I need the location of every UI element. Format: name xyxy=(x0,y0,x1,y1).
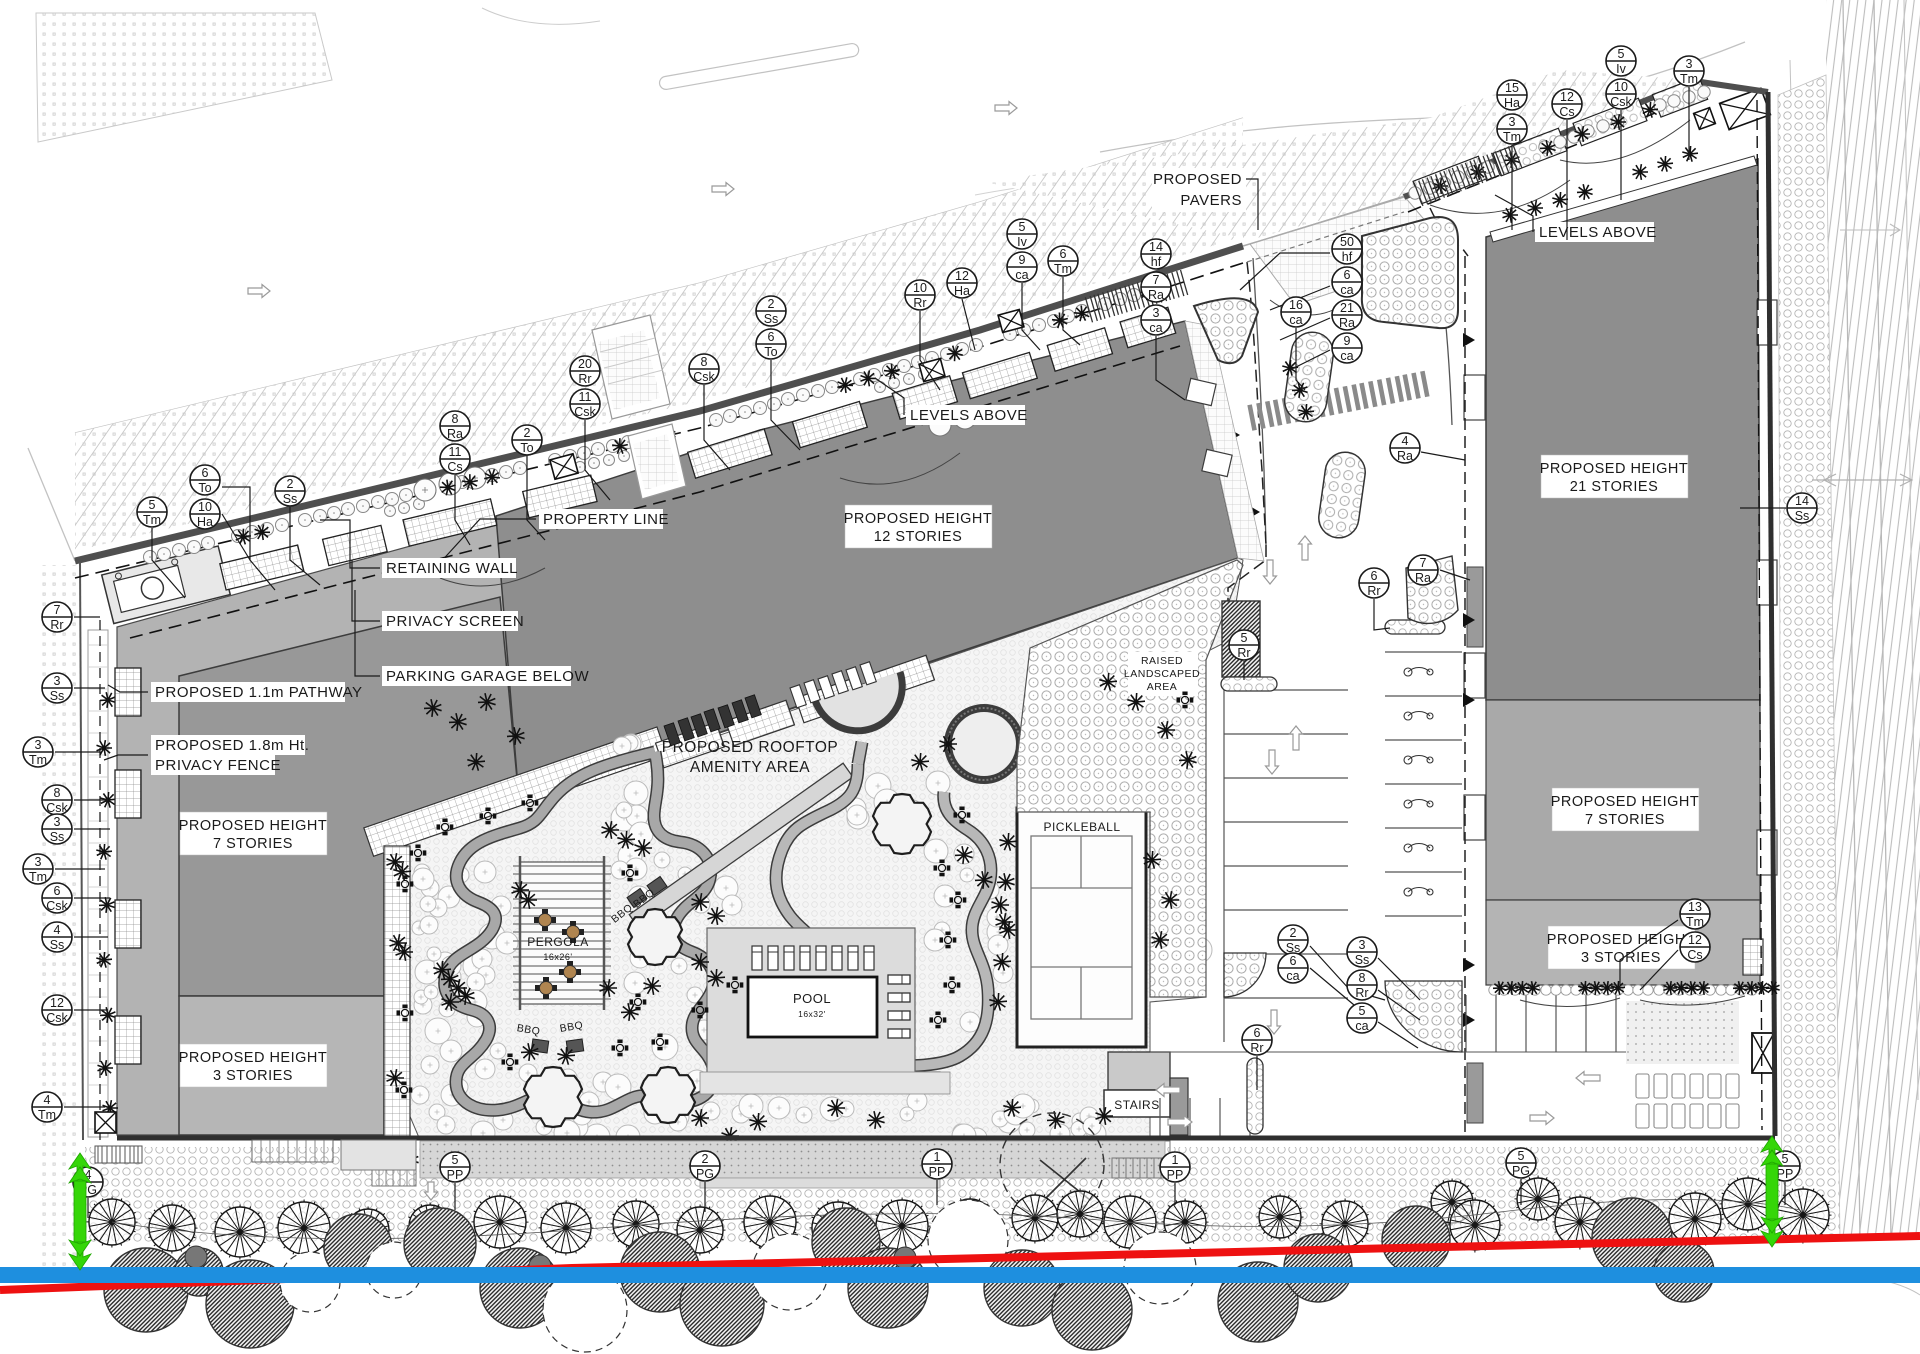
svg-text:Ss: Ss xyxy=(1795,509,1810,523)
svg-text:7: 7 xyxy=(54,603,61,617)
svg-text:7 STORIES: 7 STORIES xyxy=(1585,812,1665,828)
svg-text:16: 16 xyxy=(1289,298,1303,312)
svg-text:Ra: Ra xyxy=(1397,449,1413,463)
svg-text:Ra: Ra xyxy=(1339,316,1355,330)
svg-text:Ra: Ra xyxy=(1148,288,1164,302)
svg-text:9: 9 xyxy=(1019,253,1026,267)
svg-text:hf: hf xyxy=(1342,250,1353,264)
svg-text:Ss: Ss xyxy=(1355,953,1370,967)
svg-text:PP: PP xyxy=(929,1165,946,1179)
svg-text:6: 6 xyxy=(1344,268,1351,282)
svg-text:5: 5 xyxy=(452,1153,459,1167)
svg-text:ca: ca xyxy=(1340,283,1353,297)
svg-text:Csk: Csk xyxy=(46,899,68,913)
svg-text:3: 3 xyxy=(35,738,42,752)
svg-text:Iv: Iv xyxy=(1017,235,1027,249)
svg-text:Csk: Csk xyxy=(46,1011,68,1025)
svg-text:Ss: Ss xyxy=(50,689,65,703)
svg-text:LEVELS ABOVE: LEVELS ABOVE xyxy=(1539,224,1657,241)
svg-text:hf: hf xyxy=(1151,255,1162,269)
svg-text:5: 5 xyxy=(1618,47,1625,61)
svg-text:Ss: Ss xyxy=(283,492,298,506)
svg-text:POOL: POOL xyxy=(793,991,831,1006)
svg-text:11: 11 xyxy=(579,390,592,404)
svg-text:3 STORIES: 3 STORIES xyxy=(1581,950,1661,966)
svg-text:Ss: Ss xyxy=(764,312,779,326)
svg-text:Rr: Rr xyxy=(50,618,63,632)
svg-text:20: 20 xyxy=(578,357,592,371)
svg-text:Cs: Cs xyxy=(1559,105,1574,119)
svg-text:PROPOSED HEIGHT: PROPOSED HEIGHT xyxy=(179,1050,328,1066)
svg-text:8: 8 xyxy=(701,355,708,369)
svg-text:To: To xyxy=(198,481,211,495)
svg-text:5: 5 xyxy=(1241,631,1248,645)
svg-text:Tm: Tm xyxy=(1680,72,1698,86)
svg-text:12 STORIES: 12 STORIES xyxy=(874,529,963,545)
svg-text:Rr: Rr xyxy=(913,296,926,310)
svg-text:To: To xyxy=(764,345,777,359)
svg-text:Iv: Iv xyxy=(1616,62,1626,76)
svg-text:4: 4 xyxy=(1402,434,1409,448)
svg-text:5: 5 xyxy=(149,498,156,512)
svg-text:ca: ca xyxy=(1289,313,1302,327)
svg-text:Ha: Ha xyxy=(197,515,213,529)
svg-text:10: 10 xyxy=(1614,80,1628,94)
svg-text:Rr: Rr xyxy=(1355,986,1368,1000)
svg-text:8: 8 xyxy=(452,412,459,426)
svg-text:3: 3 xyxy=(35,855,42,869)
svg-text:10: 10 xyxy=(913,281,927,295)
svg-text:3: 3 xyxy=(1686,57,1693,71)
svg-text:LANDSCAPED: LANDSCAPED xyxy=(1124,668,1200,680)
svg-text:Ss: Ss xyxy=(50,830,65,844)
svg-text:Csk: Csk xyxy=(574,405,596,419)
svg-text:LEVELS ABOVE: LEVELS ABOVE xyxy=(910,407,1028,424)
svg-text:PP: PP xyxy=(1167,1168,1184,1182)
svg-text:6: 6 xyxy=(768,330,775,344)
svg-text:16x26': 16x26' xyxy=(543,952,572,962)
svg-text:RAISED: RAISED xyxy=(1141,655,1183,667)
svg-text:5: 5 xyxy=(1359,1004,1366,1018)
svg-text:1: 1 xyxy=(934,1150,941,1164)
svg-text:Rr: Rr xyxy=(578,372,591,386)
svg-text:4: 4 xyxy=(54,923,61,937)
svg-text:2: 2 xyxy=(1290,926,1297,940)
svg-text:PERGOLA: PERGOLA xyxy=(527,935,589,949)
svg-text:Tm: Tm xyxy=(143,513,161,527)
svg-text:8: 8 xyxy=(1359,971,1366,985)
svg-text:16x32': 16x32' xyxy=(798,1009,826,1019)
svg-text:PROPOSED ROOFTOP: PROPOSED ROOFTOP xyxy=(662,739,839,756)
svg-text:Ra: Ra xyxy=(1415,571,1431,585)
svg-text:STAIRS: STAIRS xyxy=(1114,1098,1159,1112)
svg-text:Ha: Ha xyxy=(954,284,970,298)
svg-text:PROPOSED 1.1m PATHWAY: PROPOSED 1.1m PATHWAY xyxy=(155,684,362,701)
svg-text:PRIVACY SCREEN: PRIVACY SCREEN xyxy=(386,613,524,630)
svg-text:Csk: Csk xyxy=(693,370,715,384)
svg-text:PROPOSED HEIGHT: PROPOSED HEIGHT xyxy=(844,511,993,527)
svg-text:3: 3 xyxy=(1509,115,1516,129)
svg-text:PICKLEBALL: PICKLEBALL xyxy=(1043,820,1120,834)
svg-text:ca: ca xyxy=(1015,268,1028,282)
svg-text:21 STORIES: 21 STORIES xyxy=(1570,479,1659,495)
svg-text:PROPOSED 1.8m Ht.: PROPOSED 1.8m Ht. xyxy=(155,737,309,754)
svg-text:5: 5 xyxy=(1019,220,1026,234)
svg-text:14: 14 xyxy=(1795,494,1809,508)
svg-text:9: 9 xyxy=(1344,334,1351,348)
svg-text:21: 21 xyxy=(1340,301,1354,315)
svg-text:7: 7 xyxy=(1420,556,1427,570)
svg-text:6: 6 xyxy=(1254,1026,1261,1040)
svg-text:Rr: Rr xyxy=(1250,1041,1263,1055)
svg-text:PRIVACY FENCE: PRIVACY FENCE xyxy=(155,757,281,774)
svg-text:6: 6 xyxy=(1060,247,1067,261)
svg-text:2: 2 xyxy=(524,426,531,440)
svg-text:PG: PG xyxy=(1512,1164,1530,1178)
svg-text:15: 15 xyxy=(1505,81,1519,95)
svg-text:Tm: Tm xyxy=(1686,915,1704,929)
svg-text:Tm: Tm xyxy=(29,870,47,884)
svg-text:Ra: Ra xyxy=(447,427,463,441)
svg-text:PAVERS: PAVERS xyxy=(1180,192,1242,209)
svg-text:Csk: Csk xyxy=(1610,95,1632,109)
svg-text:13: 13 xyxy=(1688,900,1702,914)
svg-text:10: 10 xyxy=(198,500,212,514)
svg-text:Ss: Ss xyxy=(50,938,65,952)
svg-text:12: 12 xyxy=(955,269,969,283)
svg-text:12: 12 xyxy=(1688,933,1702,947)
svg-text:12: 12 xyxy=(1560,90,1574,104)
svg-text:Ha: Ha xyxy=(1504,96,1520,110)
svg-text:50: 50 xyxy=(1340,235,1354,249)
svg-text:Rr: Rr xyxy=(1367,584,1380,598)
svg-text:6: 6 xyxy=(202,466,209,480)
svg-text:Rr: Rr xyxy=(1237,646,1250,660)
svg-text:PROPOSED HEIGHT: PROPOSED HEIGHT xyxy=(1547,932,1696,948)
svg-text:AREA: AREA xyxy=(1147,681,1178,693)
svg-text:ca: ca xyxy=(1340,349,1353,363)
svg-text:PARKING GARAGE BELOW: PARKING GARAGE BELOW xyxy=(386,668,589,685)
svg-text:PROPOSED HEIGHT: PROPOSED HEIGHT xyxy=(179,818,328,834)
svg-text:6: 6 xyxy=(54,884,61,898)
svg-text:3: 3 xyxy=(1153,306,1160,320)
svg-text:To: To xyxy=(520,441,533,455)
svg-text:PROPOSED HEIGHT: PROPOSED HEIGHT xyxy=(1540,461,1689,477)
svg-text:1: 1 xyxy=(1172,1153,1179,1167)
svg-text:Tm: Tm xyxy=(29,753,47,767)
svg-text:Tm: Tm xyxy=(1503,130,1521,144)
svg-text:ca: ca xyxy=(1149,321,1162,335)
svg-text:PP: PP xyxy=(1777,1167,1794,1181)
svg-text:PROPOSED HEIGHT: PROPOSED HEIGHT xyxy=(1551,794,1700,810)
svg-text:5: 5 xyxy=(1518,1149,1525,1163)
svg-text:2: 2 xyxy=(702,1152,709,1166)
svg-text:3: 3 xyxy=(54,815,61,829)
svg-text:5: 5 xyxy=(1782,1152,1789,1166)
svg-text:7 STORIES: 7 STORIES xyxy=(213,836,293,852)
svg-text:ca: ca xyxy=(1355,1019,1368,1033)
svg-text:Tm: Tm xyxy=(1054,262,1072,276)
svg-text:12: 12 xyxy=(50,996,64,1010)
svg-text:14: 14 xyxy=(1149,240,1163,254)
svg-text:7: 7 xyxy=(1153,273,1160,287)
svg-text:3: 3 xyxy=(1359,938,1366,952)
svg-text:AMENITY AREA: AMENITY AREA xyxy=(690,759,810,776)
svg-text:RETAINING WALL: RETAINING WALL xyxy=(386,560,518,577)
svg-text:11: 11 xyxy=(449,445,462,459)
svg-text:8: 8 xyxy=(54,786,61,800)
svg-text:Cs: Cs xyxy=(1687,948,1702,962)
svg-text:PROPERTY LINE: PROPERTY LINE xyxy=(543,511,669,528)
svg-text:4: 4 xyxy=(44,1093,51,1107)
svg-text:3: 3 xyxy=(54,674,61,688)
svg-text:ca: ca xyxy=(1286,969,1299,983)
svg-text:6: 6 xyxy=(1290,954,1297,968)
svg-text:2: 2 xyxy=(768,297,775,311)
svg-text:Tm: Tm xyxy=(38,1108,56,1122)
svg-text:PROPOSED: PROPOSED xyxy=(1153,171,1242,188)
svg-text:6: 6 xyxy=(1371,569,1378,583)
svg-text:Cs: Cs xyxy=(447,460,462,474)
svg-text:PP: PP xyxy=(447,1168,464,1182)
svg-text:PG: PG xyxy=(696,1167,714,1181)
svg-text:3 STORIES: 3 STORIES xyxy=(213,1068,293,1084)
svg-text:2: 2 xyxy=(287,477,294,491)
svg-text:Csk: Csk xyxy=(46,801,68,815)
